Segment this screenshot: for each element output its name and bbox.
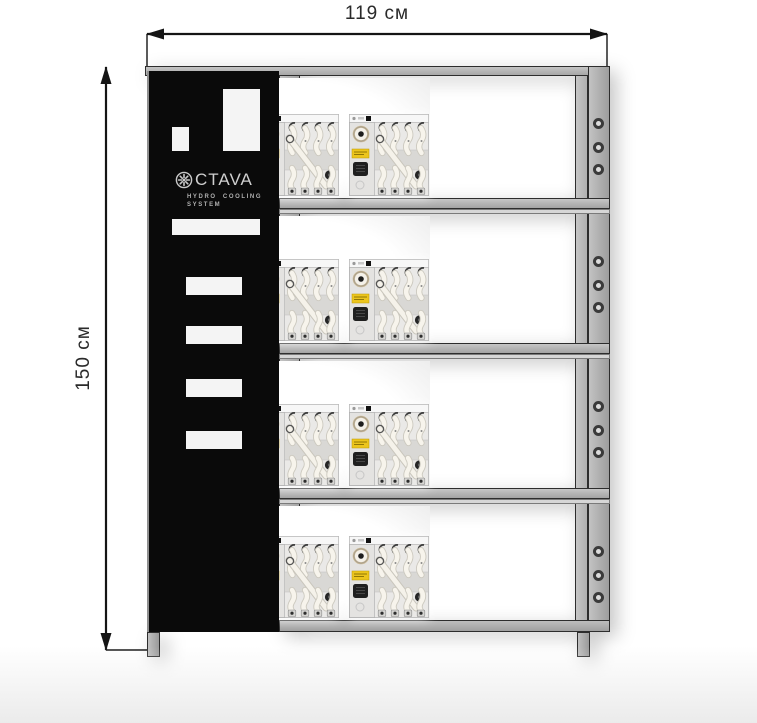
rack-right-leg bbox=[577, 632, 590, 657]
panel-display-slot bbox=[172, 219, 260, 235]
brand-logo-text: CTAVA bbox=[195, 170, 253, 190]
rack-left-leg bbox=[147, 632, 160, 657]
mount-hole bbox=[593, 118, 604, 129]
mount-hole bbox=[593, 570, 604, 581]
shelf-front-rail bbox=[279, 343, 610, 354]
mount-hole bbox=[593, 302, 604, 313]
shelf-front-rail bbox=[279, 198, 610, 209]
cooling-device-unit bbox=[349, 402, 429, 488]
shelf-front-rail bbox=[279, 488, 610, 499]
panel-cutout-small bbox=[172, 127, 189, 151]
panel-cutout-large bbox=[223, 89, 260, 151]
panel-subtitle-line2: SYSTEM bbox=[187, 202, 221, 208]
brand-panel: CTAVA HYDRO COOLING SYSTEM bbox=[147, 71, 279, 632]
product-spec-diagram: 119 см 150 см bbox=[0, 0, 757, 723]
mount-hole bbox=[593, 256, 604, 267]
mount-hole bbox=[593, 425, 604, 436]
width-dimension-label: 119 см bbox=[140, 3, 614, 25]
width-dimension-arrow bbox=[140, 27, 614, 69]
mount-hole bbox=[593, 401, 604, 412]
panel-vent-slot bbox=[186, 431, 242, 449]
rack-bottom-rail bbox=[279, 620, 610, 632]
panel-vent-slot bbox=[186, 277, 242, 295]
panel-subtitle-line1: HYDRO COOLING bbox=[187, 194, 262, 200]
panel-vent-slot bbox=[186, 326, 242, 344]
mount-hole bbox=[593, 592, 604, 603]
mount-hole bbox=[593, 142, 604, 153]
shelf-lip bbox=[279, 209, 610, 214]
fan-icon bbox=[175, 171, 193, 189]
shelf-lip bbox=[279, 499, 610, 504]
shelf-lip bbox=[279, 354, 610, 359]
mount-hole bbox=[593, 546, 604, 557]
brand-logo: CTAVA bbox=[175, 169, 275, 191]
cooling-device-unit bbox=[349, 534, 429, 620]
panel-vent-slot bbox=[186, 379, 242, 397]
mount-hole bbox=[593, 447, 604, 458]
cooling-device-unit bbox=[349, 112, 429, 198]
mount-hole bbox=[593, 280, 604, 291]
cooling-device-unit bbox=[349, 257, 429, 343]
mount-hole bbox=[593, 164, 604, 175]
